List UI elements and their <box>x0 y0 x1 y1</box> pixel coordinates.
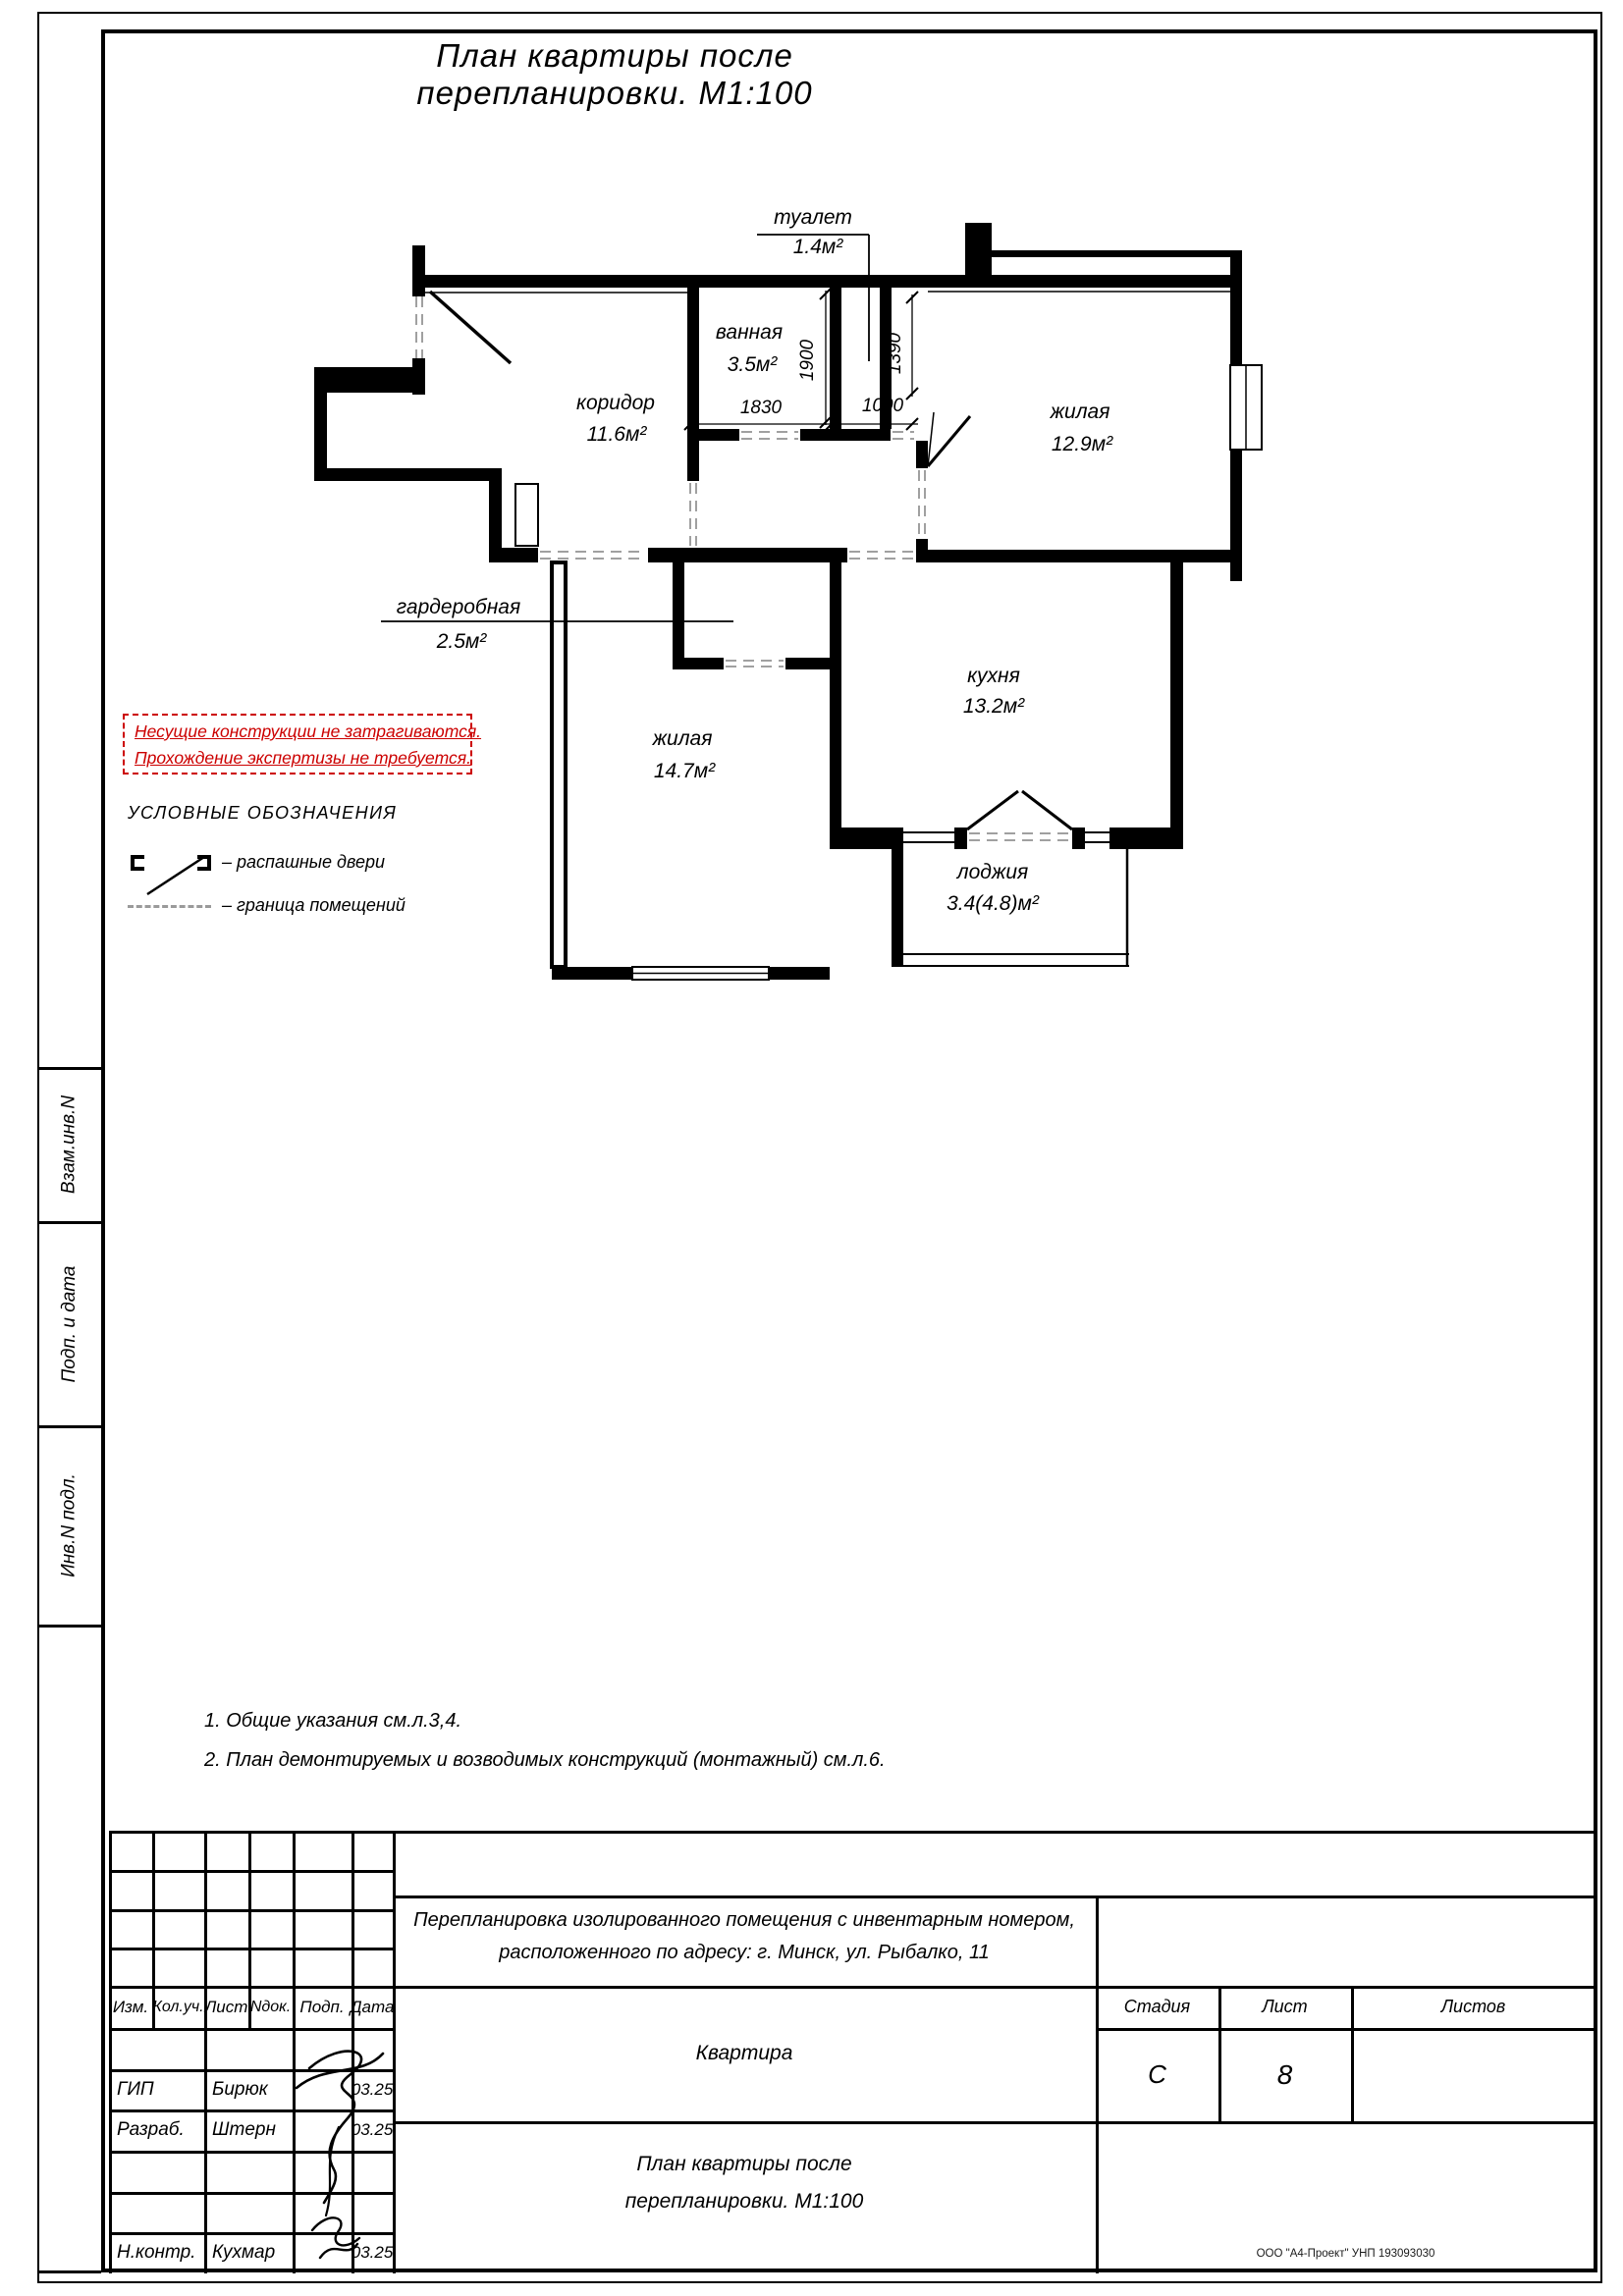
signature-marks <box>285 2034 403 2274</box>
tb-project-line1: Перепланировка изолированного помещения … <box>393 1904 1096 1937</box>
legend-door-label: – распашные двери <box>222 852 385 873</box>
page-title: План квартиры после перепланировки. М1:1… <box>310 37 919 112</box>
room-label-living2: жилая <box>652 727 713 750</box>
double-walls <box>515 365 1262 980</box>
dim-toilet-width: 1000 <box>862 396 904 416</box>
room-area-loggia: 3.4(4.8)м² <box>947 892 1040 915</box>
tb-line <box>393 1896 1596 1898</box>
tb-name-nkontr: Кухмар <box>212 2232 291 2272</box>
room-area-toilet: 1.4м² <box>793 236 844 258</box>
tb-sheets-label: Листов <box>1351 1986 1596 2028</box>
margin-box-4 <box>37 1625 101 2270</box>
tb-role-nkontr: Н.контр. <box>117 2232 203 2272</box>
tb-line <box>109 2028 393 2031</box>
tb-project-line2: расположенного по адресу: г. Минск, ул. … <box>393 1937 1096 1969</box>
drawing-sheet: План квартиры после перепланировки. М1:1… <box>0 0 1623 2296</box>
tb-col-list: Лист <box>204 1986 248 2028</box>
room-area-wardrobe: 2.5м² <box>436 630 488 653</box>
legend-title: УСЛОВНЫЕ ОБОЗНАЧЕНИЯ <box>128 803 397 824</box>
floor-plan: туалет 1.4м² коридор 11.6м² ванная 3.5м²… <box>314 137 1276 1001</box>
warning-line-2: Прохождение экспертизы не требуется. <box>135 745 460 772</box>
room-area-corridor: 11.6м² <box>587 423 648 446</box>
room-door-leaf-icon <box>928 416 970 466</box>
tb-col-izm: Изм. <box>109 1986 152 2028</box>
tb-project: Перепланировка изолированного помещения … <box>393 1904 1096 1969</box>
tb-drawing-name-line1: План квартиры после <box>393 2146 1096 2183</box>
room-label-bath: ванная <box>716 321 783 344</box>
note-1: 1. Общие указания см.л.3,4. <box>204 1710 461 1733</box>
tb-name-gip: Бирюк <box>212 2069 291 2109</box>
tb-col-podp: Подп. <box>293 1986 352 2028</box>
room-label-kitchen: кухня <box>967 665 1020 687</box>
room-area-living1: 12.9м² <box>1052 433 1113 455</box>
room-boundaries <box>416 296 1070 840</box>
room-area-kitchen: 13.2м² <box>963 695 1025 718</box>
room-label-wardrobe: гардеробная <box>397 596 520 618</box>
room-area-bath: 3.5м² <box>728 353 779 376</box>
balcony-door-leaf-icon <box>1022 791 1072 829</box>
tb-col-ndok: Nдок. <box>248 1986 293 2028</box>
tb-company: ООО "А4-Проект" УНП 193093030 <box>1096 2248 1596 2260</box>
room-area-living2: 14.7м² <box>654 760 716 782</box>
tb-sheet-value: 8 <box>1218 2028 1351 2121</box>
tb-stage-value: С <box>1096 2028 1218 2121</box>
tb-line <box>109 1831 112 2273</box>
tb-col-data: Дата <box>352 1986 393 2028</box>
tb-line <box>393 2121 1596 2124</box>
tb-drawing-name-line2: перепланировки. М1:100 <box>393 2183 1096 2220</box>
tb-role-gip: ГИП <box>117 2069 203 2109</box>
room-label-corridor: коридор <box>576 392 655 414</box>
room-label-toilet: туалет <box>774 206 852 229</box>
tb-line <box>204 1831 207 2273</box>
warning-line-1: Несущие конструкции не затрагиваются. <box>135 719 460 745</box>
tb-object: Квартира <box>393 1986 1096 2121</box>
tb-stage-label: Стадия <box>1096 1986 1218 2028</box>
tb-name-razrab: Штерн <box>212 2109 291 2150</box>
door-leaf-symbol-icon <box>126 849 219 898</box>
tb-role-razrab: Разраб. <box>117 2109 203 2150</box>
tb-sheet-label: Лист <box>1218 1986 1351 2028</box>
margin-label-podp: Подп. и дата <box>59 1222 81 1426</box>
margin-label-inv: Инв.N подл. <box>59 1426 81 1626</box>
entry-door-leaf-icon <box>430 292 511 363</box>
legend-boundary-label: – граница помещений <box>222 895 406 916</box>
note-2: 2. План демонтируемых и возводимых конст… <box>204 1749 886 1772</box>
tb-drawing-name: План квартиры после перепланировки. М1:1… <box>393 2146 1096 2220</box>
tb-col-koluch: Кол.уч. <box>152 1986 204 2028</box>
tb-line <box>109 1831 1596 1834</box>
dim-bath-depth: 1900 <box>797 339 818 381</box>
room-label-loggia: лоджия <box>956 861 1028 883</box>
dim-toilet-depth: 1390 <box>885 332 905 374</box>
margin-label-vzam: Взам.инв.N <box>59 1068 81 1222</box>
margin-bottom-line <box>37 2270 101 2273</box>
boundary-symbol-icon <box>128 905 211 908</box>
warning-box: Несущие конструкции не затрагиваются. Пр… <box>123 714 472 774</box>
dim-bath-width: 1830 <box>740 398 783 418</box>
balcony-door-leaf-icon <box>967 791 1018 829</box>
room-label-living1: жилая <box>1050 400 1110 423</box>
